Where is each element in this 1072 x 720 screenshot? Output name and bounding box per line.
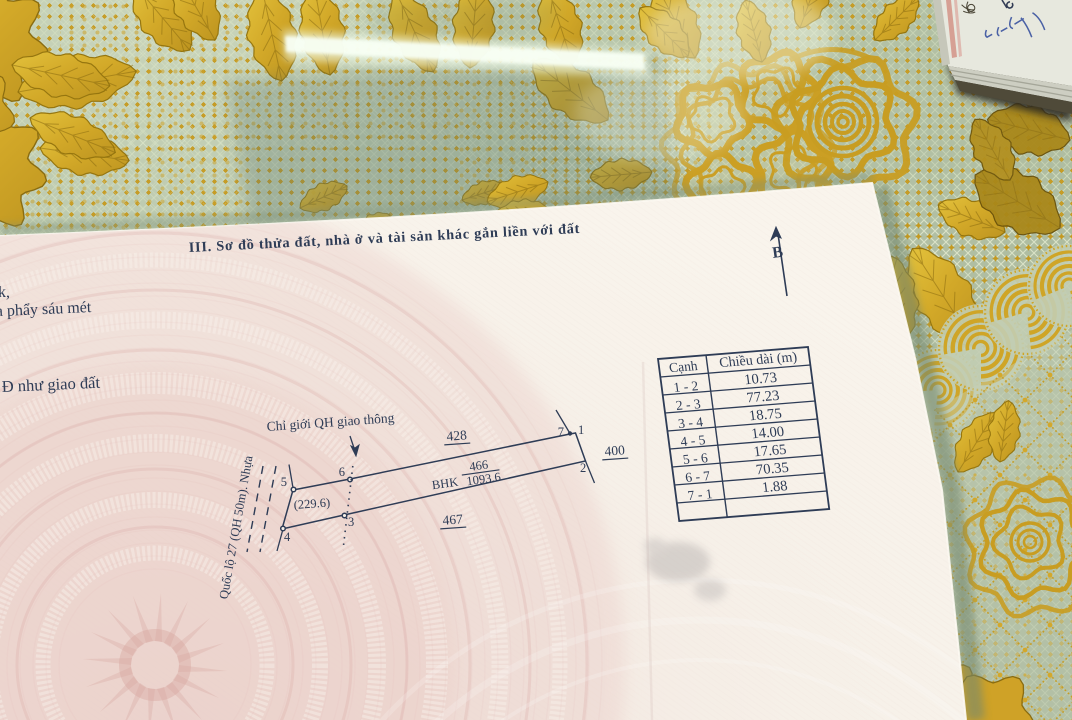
svg-text:7 - 1: 7 - 1	[687, 486, 714, 503]
svg-text:10.73: 10.73	[743, 370, 778, 389]
svg-text:18.75: 18.75	[748, 406, 783, 425]
svg-text:2 - 3: 2 - 3	[675, 396, 702, 413]
svg-text:400: 400	[604, 442, 625, 458]
svg-text:4 - 5: 4 - 5	[680, 432, 707, 449]
svg-text:14.00: 14.00	[750, 424, 785, 443]
svg-text:5: 5	[281, 475, 287, 489]
svg-text:70.35: 70.35	[755, 460, 790, 479]
svg-text:467: 467	[442, 511, 463, 527]
svg-text:17.65: 17.65	[753, 442, 788, 461]
svg-text:4: 4	[284, 530, 291, 544]
svg-text:3 - 4: 3 - 4	[677, 414, 704, 431]
svg-text:1: 1	[578, 423, 584, 437]
svg-text:Cạnh: Cạnh	[668, 358, 699, 375]
svg-text:77.23: 77.23	[746, 388, 781, 407]
svg-text:6 - 7: 6 - 7	[684, 468, 711, 485]
svg-text:1 - 2: 1 - 2	[673, 378, 700, 395]
svg-text:7: 7	[558, 425, 564, 439]
svg-text:428: 428	[446, 427, 467, 443]
svg-text:5 - 6: 5 - 6	[682, 450, 709, 467]
svg-text:(229.6): (229.6)	[293, 495, 330, 512]
svg-text:2: 2	[580, 461, 586, 475]
svg-text:3: 3	[348, 515, 354, 529]
svg-text:k,: k,	[0, 284, 10, 301]
svg-text:1.88: 1.88	[761, 478, 788, 496]
svg-text:6: 6	[339, 465, 345, 479]
